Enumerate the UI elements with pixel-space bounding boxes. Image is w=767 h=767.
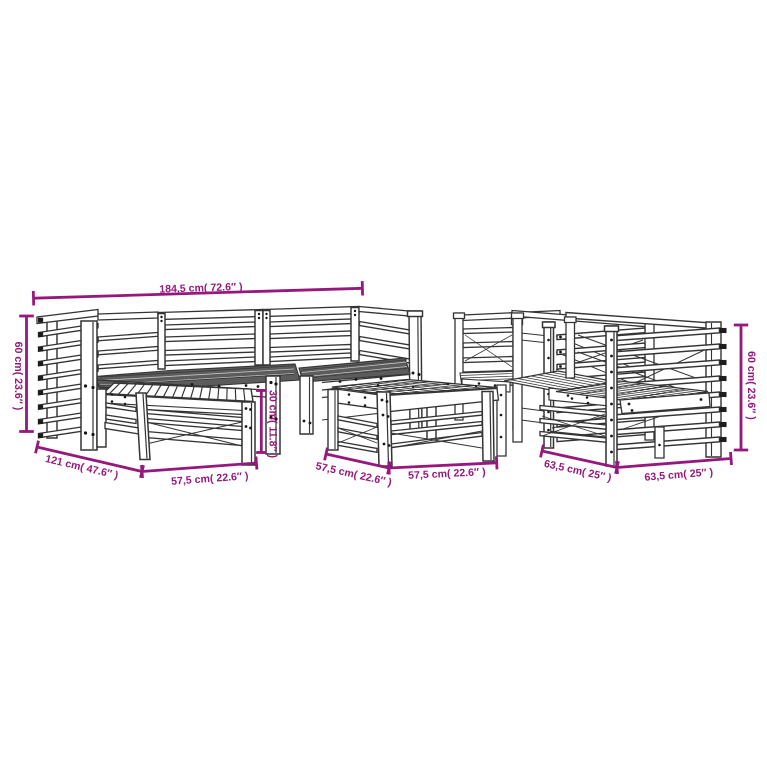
- svg-text:60 cm( 23.6″ ): 60 cm( 23.6″ ): [745, 351, 757, 420]
- svg-text:30 cm( 11.8″ ): 30 cm( 11.8″ ): [266, 390, 278, 458]
- svg-text:60 cm( 23.6″ ): 60 cm( 23.6″ ): [12, 342, 24, 411]
